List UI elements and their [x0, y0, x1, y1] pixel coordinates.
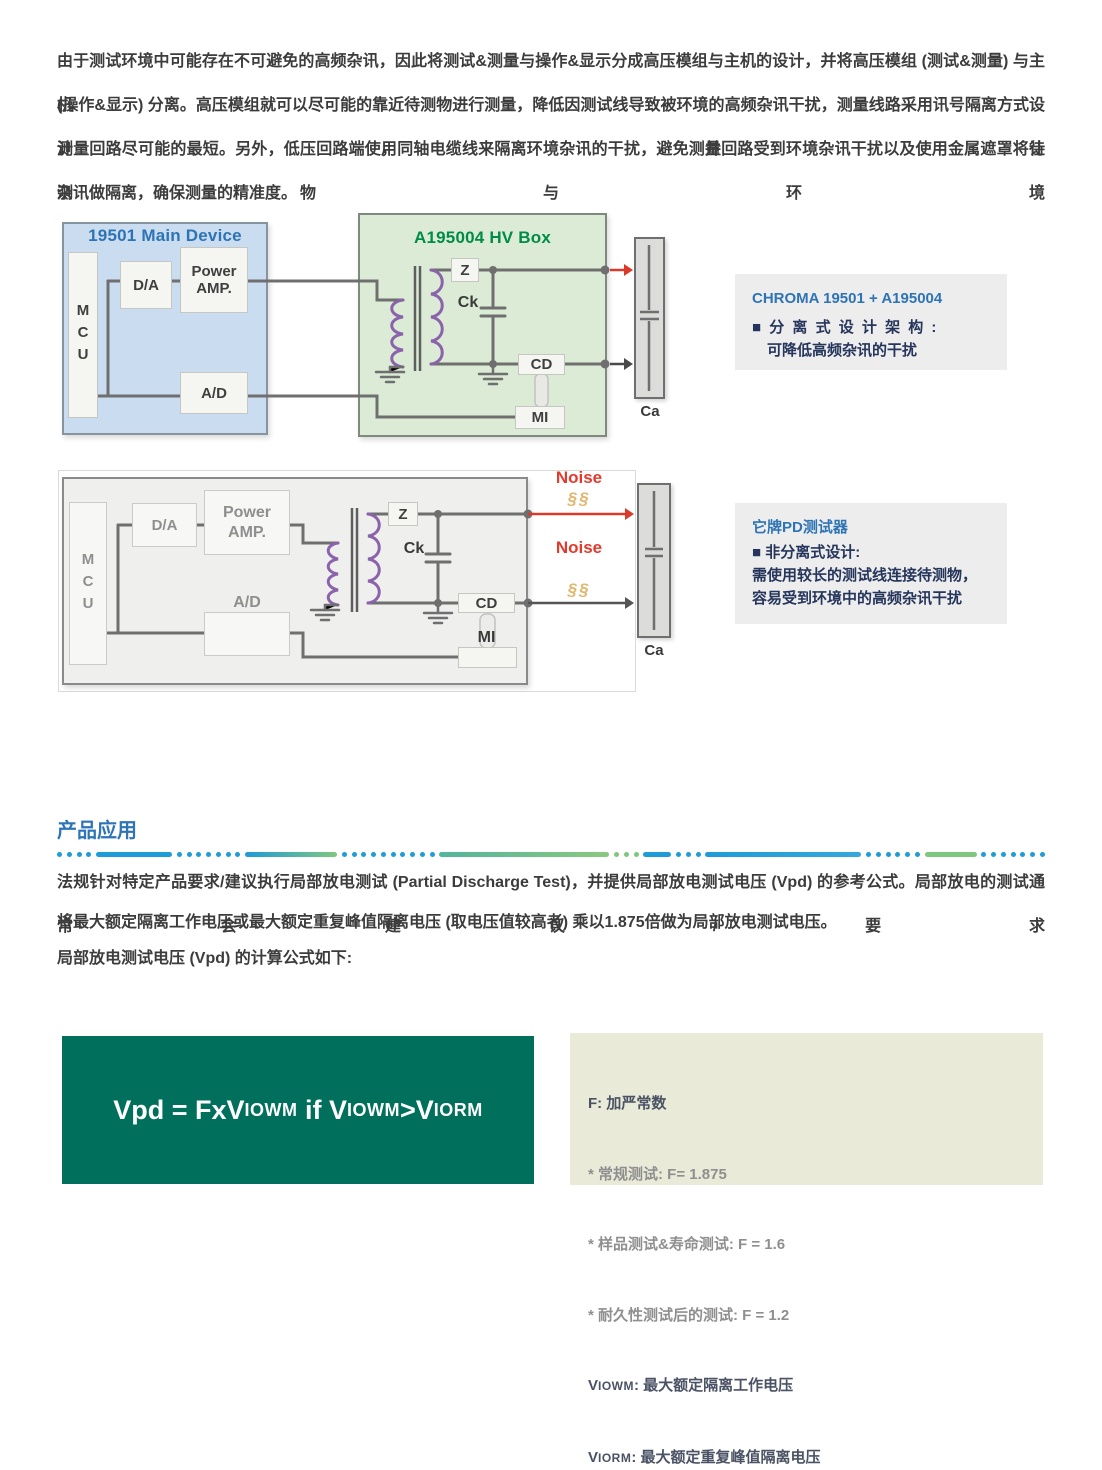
ca-label: Ca — [630, 403, 670, 420]
section-divider — [57, 851, 1045, 857]
note1-title: CHROMA 19501 + A195004 — [752, 287, 990, 310]
power-amp-label2: AMP. — [196, 280, 232, 297]
mi-block: MI — [515, 406, 565, 429]
power-amp-label2a: Power — [223, 503, 271, 523]
power-amp-block: Power AMP. — [180, 247, 248, 313]
figure-nonseparated-design: MCU D/A Power AMP. A/D Z Ck CD MI Noise … — [57, 462, 682, 697]
formula-part: if V — [298, 1095, 348, 1126]
document-page: 由于测试环境中可能存在不可避免的高频杂讯，因此将测试&测量与操作&显示分成高压模… — [0, 0, 1102, 1470]
formula-subscript: IOWM — [245, 1100, 298, 1121]
da-block2: D/A — [132, 503, 197, 547]
formula-subscript: IOWM — [347, 1100, 400, 1121]
z-block2: Z — [388, 502, 418, 526]
intro-paragraph: 由于测试环境中可能存在不可避免的高频杂讯，因此将测试&测量与操作&显示分成高压模… — [57, 40, 1045, 216]
formula-part: >V — [400, 1095, 434, 1126]
note2-line1: ■ 非分离式设计: — [752, 541, 990, 564]
mcu-label2: MCU — [80, 551, 97, 617]
note2-line3: 容易受到环境中的高频杂讯干扰 — [752, 587, 990, 610]
formula-subscript: IORM — [434, 1100, 483, 1121]
ad-block: A/D — [180, 372, 248, 414]
noise-symbol-top: §§ — [544, 489, 614, 509]
ck-label2: Ck — [399, 540, 429, 558]
f-note-item: * 耐久性测试后的测试: F = 1.2 — [588, 1304, 1025, 1328]
figure-separated-design: 19501 Main Device A195004 HV Box MCU D/A… — [57, 213, 682, 445]
noise-symbol-bottom: §§ — [544, 580, 614, 600]
cd-label: CD — [531, 356, 553, 373]
note-chroma-design: CHROMA 19501 + A195004 ■ 分 离 式 设 计 架 构 :… — [735, 274, 1007, 370]
viowm-definition: VIOWM: 最大额定隔离工作电压 — [588, 1374, 1025, 1399]
cd-label2: CD — [476, 595, 498, 612]
f-note-item: * 样品测试&寿命测试: F = 1.6 — [588, 1233, 1025, 1257]
intro-line: 测量回路尽可能的最短。另外，低压回路端使用同轴电缆线来隔离环境杂讯的干扰，避免测… — [57, 128, 1045, 172]
note2-line2: 需使用较长的测试线连接待测物， — [752, 564, 990, 587]
z-block: Z — [451, 258, 479, 282]
mcu-block: MCU — [68, 252, 98, 418]
da-label2: D/A — [152, 517, 178, 534]
note1-line2: 可降低高频杂讯的干扰 — [752, 339, 990, 362]
ad-label: A/D — [201, 385, 227, 402]
power-amp-label: Power — [191, 263, 236, 280]
da-block: D/A — [120, 261, 172, 309]
power-amp-block2: Power AMP. — [204, 490, 290, 555]
formula-part: Vpd = FxV — [113, 1095, 244, 1126]
mi-label2: MI — [458, 629, 515, 647]
hv-box-title: A195004 HV Box — [358, 228, 607, 248]
da-label: D/A — [133, 277, 159, 294]
cd-block: CD — [518, 354, 565, 375]
z-label2: Z — [398, 506, 407, 523]
cd-block2: CD — [458, 593, 515, 613]
note1-line1: ■ 分 离 式 设 计 架 构 : — [752, 316, 990, 339]
mi-block2 — [458, 647, 517, 668]
application-line: 法规针对特定产品要求/建议执行局部放电测试 (Partial Discharge… — [57, 861, 1045, 905]
f-note-item: * 常规测试: F= 1.875 — [588, 1163, 1025, 1187]
main-device-title: 19501 Main Device — [62, 226, 268, 246]
note2-title: 它牌PD测试器 — [752, 516, 990, 539]
section-title: 产品应用 — [57, 814, 137, 843]
formula-notes-box: F: 加严常数 * 常规测试: F= 1.875 * 样品测试&寿命测试: F … — [570, 1033, 1043, 1185]
mi-label: MI — [532, 409, 549, 426]
f-constant-line: F: 加严常数 — [588, 1092, 1025, 1116]
ad-block2 — [204, 612, 290, 656]
ca-label2: Ca — [633, 642, 675, 659]
note-other-tester: 它牌PD测试器 ■ 非分离式设计: 需使用较长的测试线连接待测物， 容易受到环境… — [735, 503, 1007, 624]
ck-label: Ck — [453, 294, 483, 312]
application-paragraph: 法规针对特定产品要求/建议执行局部放电测试 (Partial Discharge… — [57, 861, 1045, 977]
mcu-block2: MCU — [69, 502, 107, 665]
viorm-definition: VIORM: 最大额定重复峰值隔离电压 — [588, 1446, 1025, 1470]
mcu-label: MCU — [75, 302, 92, 368]
ad-label2: A/D — [204, 594, 290, 612]
vpd-formula-box: Vpd = FxVIOWM if VIOWM>VIORM — [62, 1036, 534, 1184]
intro-line: 由于测试环境中可能存在不可避免的高频杂讯，因此将测试&测量与操作&显示分成高压模… — [57, 40, 1045, 84]
intro-line: (操作&显示) 分离。高压模组就可以尽可能的靠近待测物进行测量，降低因测试线导致… — [57, 84, 1045, 128]
noise-label-top: Noise — [544, 468, 614, 488]
power-amp-label2b: AMP. — [228, 523, 266, 543]
noise-label-bottom: Noise — [544, 538, 614, 558]
z-label: Z — [460, 262, 469, 279]
